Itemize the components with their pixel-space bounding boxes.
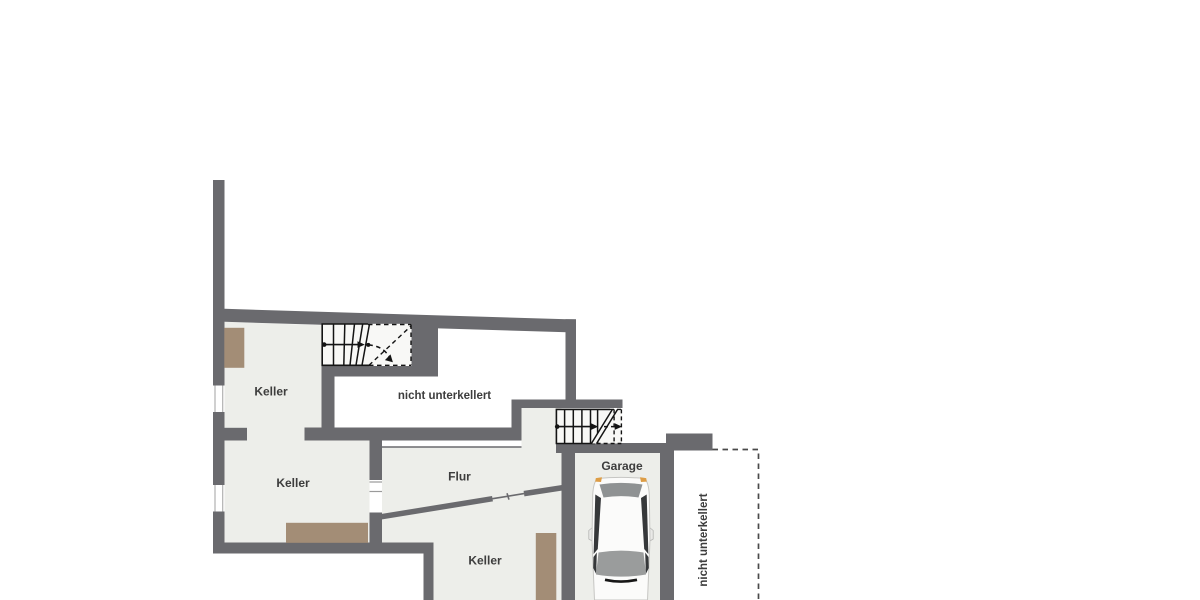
svg-text:Flur: Flur bbox=[448, 470, 471, 484]
svg-text:Keller: Keller bbox=[254, 385, 288, 399]
svg-text:Keller: Keller bbox=[468, 554, 502, 568]
svg-text:Garage: Garage bbox=[601, 459, 643, 473]
svg-text:nicht unterkellert: nicht unterkellert bbox=[698, 493, 710, 586]
svg-text:Keller: Keller bbox=[276, 476, 310, 490]
svg-text:nicht unterkellert: nicht unterkellert bbox=[398, 390, 491, 402]
